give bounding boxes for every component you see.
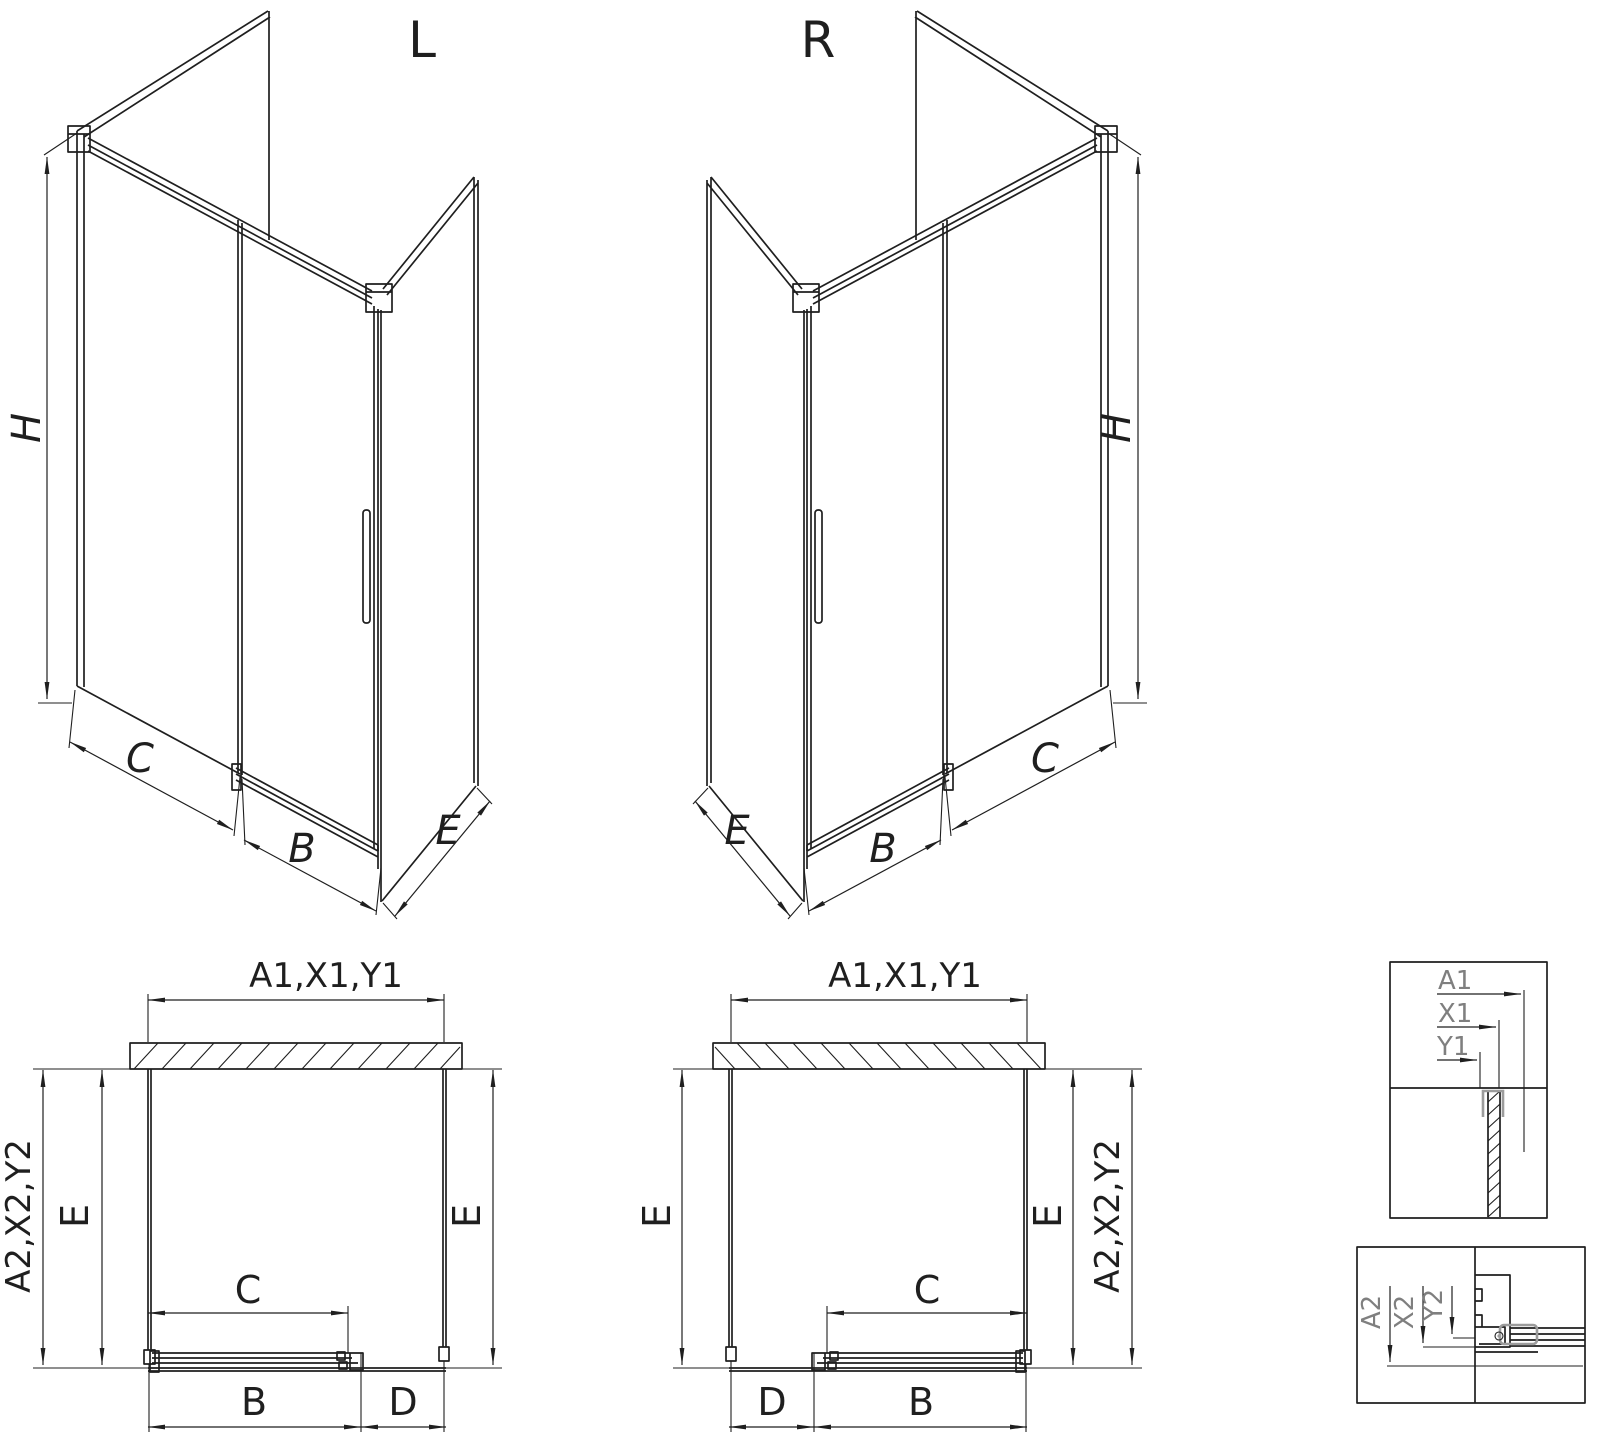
plan-right-opening-label: C	[914, 1268, 941, 1312]
iso-right-dim-h-label: H	[1094, 413, 1140, 443]
technical-drawing-page: L H C B E R H C B E A1,X1,Y1 A2,X2,Y2 E …	[0, 0, 1600, 1438]
detail-top-a-label: A1	[1438, 966, 1472, 996]
plan-right-side-right-label: E	[1026, 1204, 1070, 1228]
detail-bottom-x-label: X2	[1390, 1295, 1420, 1329]
plan-left-door-label: B	[241, 1380, 267, 1424]
plan-view-right: A1,X1,Y1 A2,X2,Y2 E E C B D	[635, 956, 1142, 1432]
plan-right-door-label: B	[908, 1380, 934, 1424]
detail-bottom-y-label: Y2	[1419, 1289, 1449, 1322]
detail-top-y-label: Y1	[1436, 1032, 1469, 1062]
plan-left-depth-label: A2,X2,Y2	[0, 1139, 39, 1293]
detail-top-ref-lines	[1480, 990, 1524, 1152]
plan-left-side-right-label: E	[445, 1204, 489, 1228]
plan-left-side-left-label: E	[53, 1204, 97, 1228]
iso-left-dim-h-label: H	[4, 413, 50, 443]
plan-left-fixed-label: D	[388, 1380, 417, 1424]
iso-left-dim-c-label: C	[126, 736, 154, 782]
iso-view-left: L H C B E	[4, 11, 492, 919]
detail-top-x-label: X1	[1438, 999, 1472, 1029]
iso-right-geometry	[693, 11, 1147, 919]
iso-right-dim-c-label: C	[1031, 736, 1059, 782]
iso-right-dim-b-label: B	[869, 826, 896, 872]
detail-bottom-a-label: A2	[1357, 1295, 1387, 1329]
shower-enclosure-diagram: L H C B E R H C B E A1,X1,Y1 A2,X2,Y2 E …	[0, 0, 1600, 1438]
plan-view-left: A1,X1,Y1 A2,X2,Y2 E E C B D	[0, 956, 502, 1432]
iso-right-title: R	[801, 11, 836, 69]
iso-right-dim-e-label: E	[724, 808, 750, 854]
plan-right-depth-label: A2,X2,Y2	[1088, 1139, 1128, 1293]
plan-left-geometry	[33, 994, 502, 1432]
iso-view-right: R H C B E	[693, 11, 1147, 919]
iso-left-dim-e-label: E	[435, 808, 461, 854]
iso-left-geometry	[38, 11, 492, 919]
plan-left-width-label: A1,X1,Y1	[249, 956, 403, 996]
detail-bottom-screw-dot	[1497, 1334, 1500, 1337]
detail-floor-rail-section: A2 X2 Y2	[1357, 1247, 1585, 1403]
plan-right-width-label: A1,X1,Y1	[828, 956, 982, 996]
iso-left-title: L	[408, 11, 436, 69]
iso-left-dim-b-label: B	[288, 826, 315, 872]
plan-right-geometry	[673, 994, 1142, 1432]
detail-top-glass-hatch	[1488, 1091, 1500, 1217]
detail-wall-profile-section: A1 X1 Y1	[1390, 962, 1547, 1218]
plan-left-opening-label: C	[235, 1268, 262, 1312]
plan-right-side-left-label: E	[635, 1204, 679, 1228]
plan-right-fixed-label: D	[757, 1380, 786, 1424]
